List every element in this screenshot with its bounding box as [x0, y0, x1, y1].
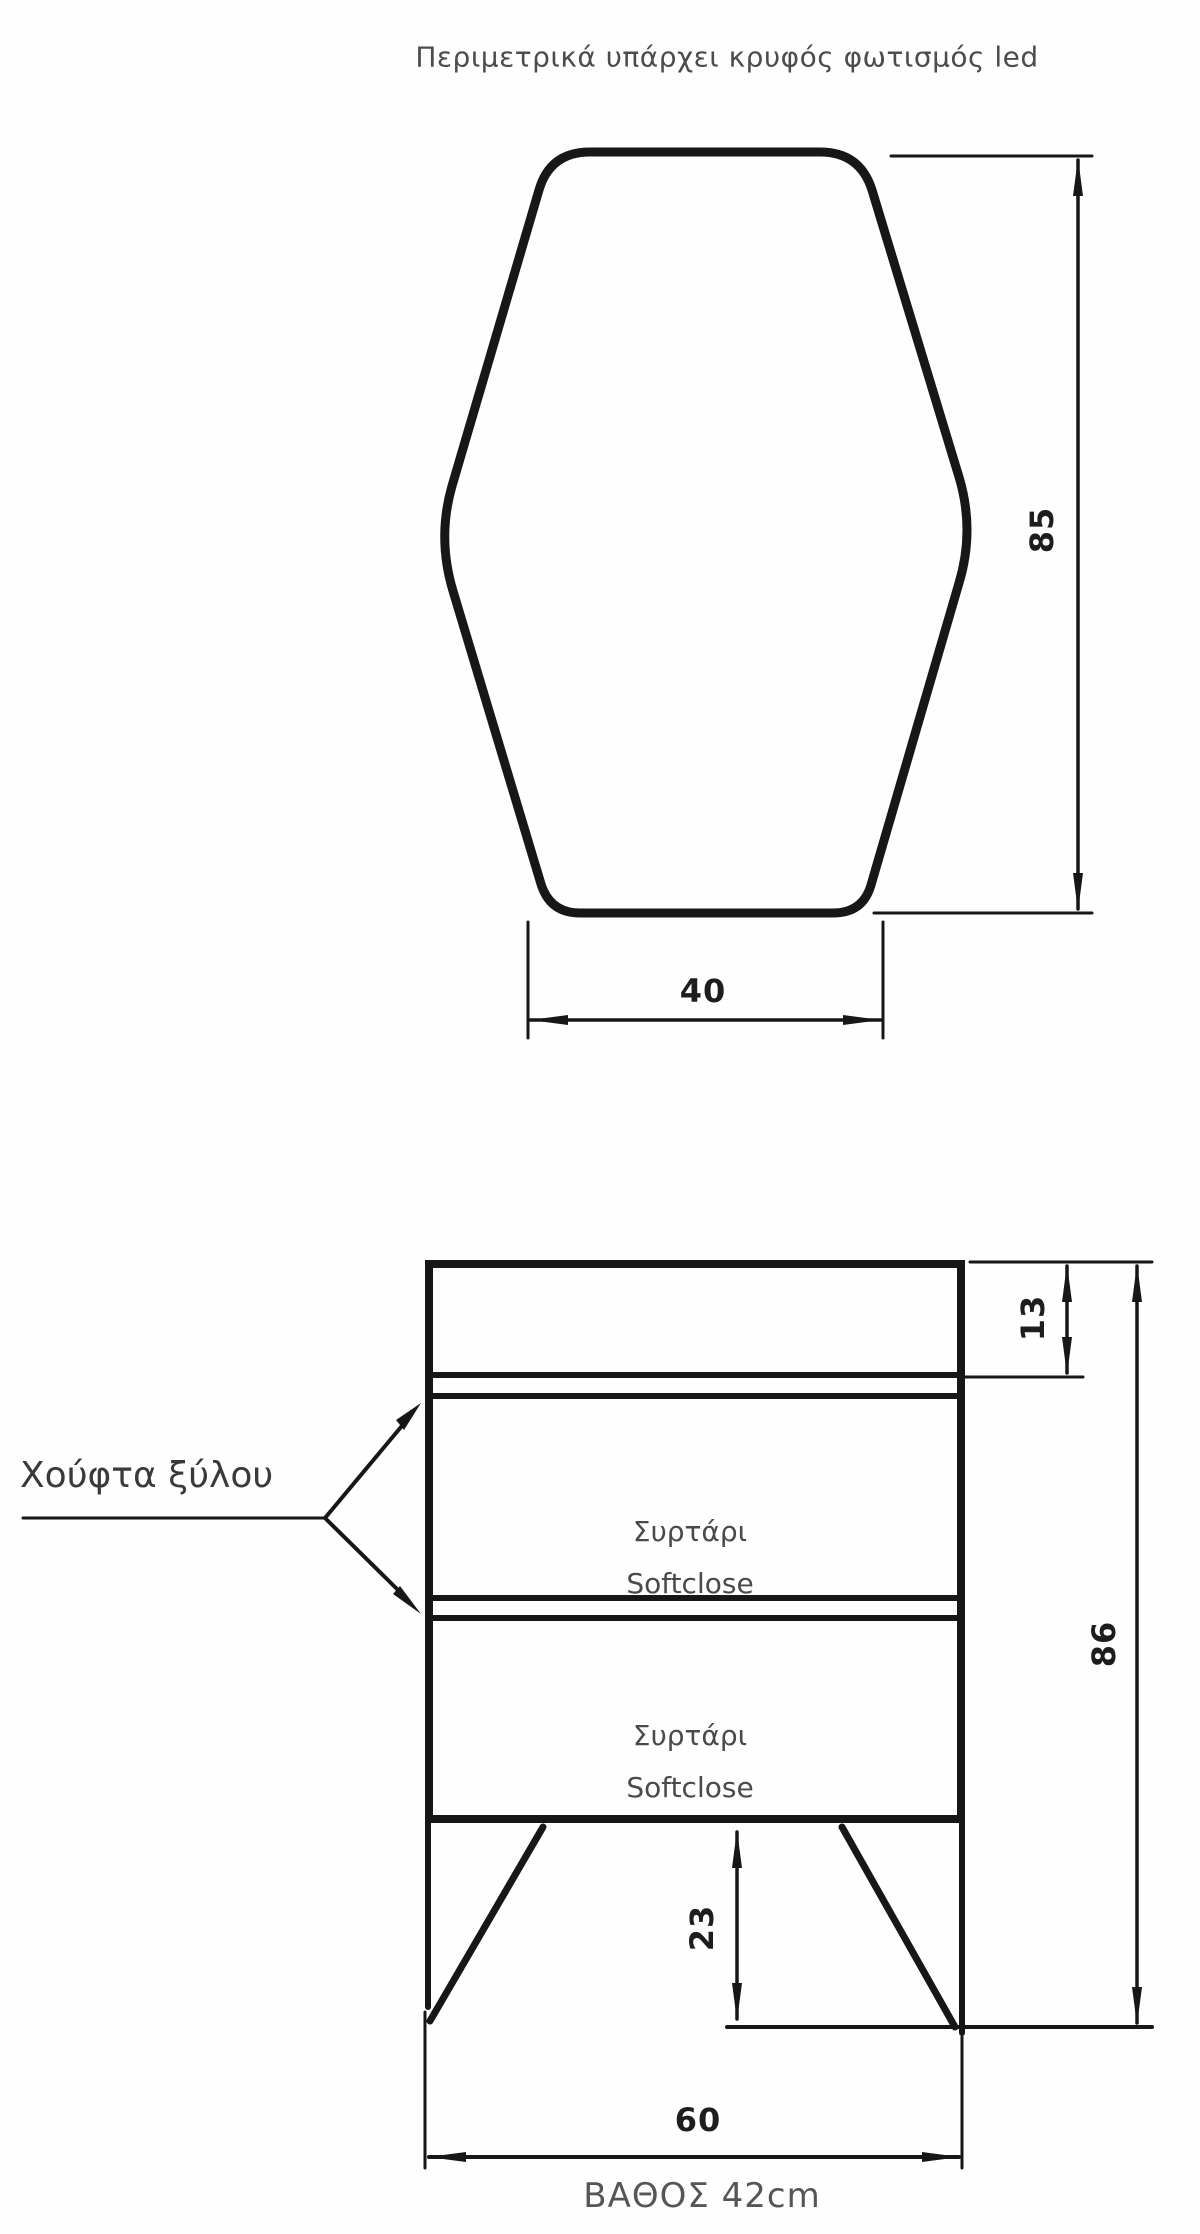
drawing-canvas: Περιμετρικά υπάρχει κρυφός φωτισμός led … — [0, 0, 1200, 2234]
total-height-value: 86 — [1085, 1621, 1123, 1668]
top-section-dimension — [965, 1262, 1152, 1377]
arrowhead-icon — [530, 1015, 568, 1025]
drawer1-label-line2: Softclose — [626, 1558, 753, 1610]
arrowhead-icon — [1062, 1337, 1072, 1375]
arrowhead-icon — [732, 1830, 742, 1868]
arrowhead-icon — [1132, 1987, 1142, 2025]
handle-leader — [23, 1403, 421, 1614]
leader-line — [325, 1421, 406, 1518]
leg-height-dimension — [732, 1830, 742, 2021]
drawer1-label-line1: Συρτάρι — [626, 1506, 753, 1558]
mirror-width-value: 40 — [680, 972, 727, 1010]
mirror-shape — [445, 152, 967, 913]
top-section-height-value: 13 — [1014, 1295, 1052, 1342]
drawer2-label: Συρτάρι Softclose — [626, 1710, 753, 1814]
technical-drawing-linework — [0, 0, 1200, 2234]
arrowhead-icon — [1132, 1264, 1142, 1302]
mirror-height-value: 85 — [1023, 507, 1061, 554]
arrowhead-icon — [428, 2152, 466, 2162]
arrowhead-icon — [1073, 873, 1083, 911]
drawer1-label: Συρτάρι Softclose — [626, 1506, 753, 1610]
arrowhead-icon — [732, 1983, 742, 2021]
led-lighting-note: Περιμετρικά υπάρχει κρυφός φωτισμός led — [415, 41, 1038, 74]
right-leg-diagonal-line — [842, 1827, 955, 2027]
arrowhead-icon — [1062, 1264, 1072, 1302]
drawer2-label-line2: Softclose — [626, 1762, 753, 1814]
leg-height-value: 23 — [683, 1905, 721, 1952]
mirror-outline — [445, 152, 967, 913]
arrowhead-icon — [843, 1015, 881, 1025]
cabinet-width-dimension — [425, 2012, 962, 2168]
depth-note: ΒΑΘΟΣ 42cm — [583, 2176, 820, 2216]
cabinet-width-value: 60 — [675, 2101, 722, 2139]
drawer2-label-line1: Συρτάρι — [626, 1710, 753, 1762]
arrowhead-icon — [393, 1586, 421, 1614]
handle-label: Χούφτα ξύλου — [20, 1455, 273, 1496]
arrowhead-icon — [1073, 158, 1083, 196]
leader-line — [325, 1518, 399, 1591]
left-leg-diagonal-line — [430, 1827, 543, 2021]
arrowhead-icon — [922, 2152, 960, 2162]
